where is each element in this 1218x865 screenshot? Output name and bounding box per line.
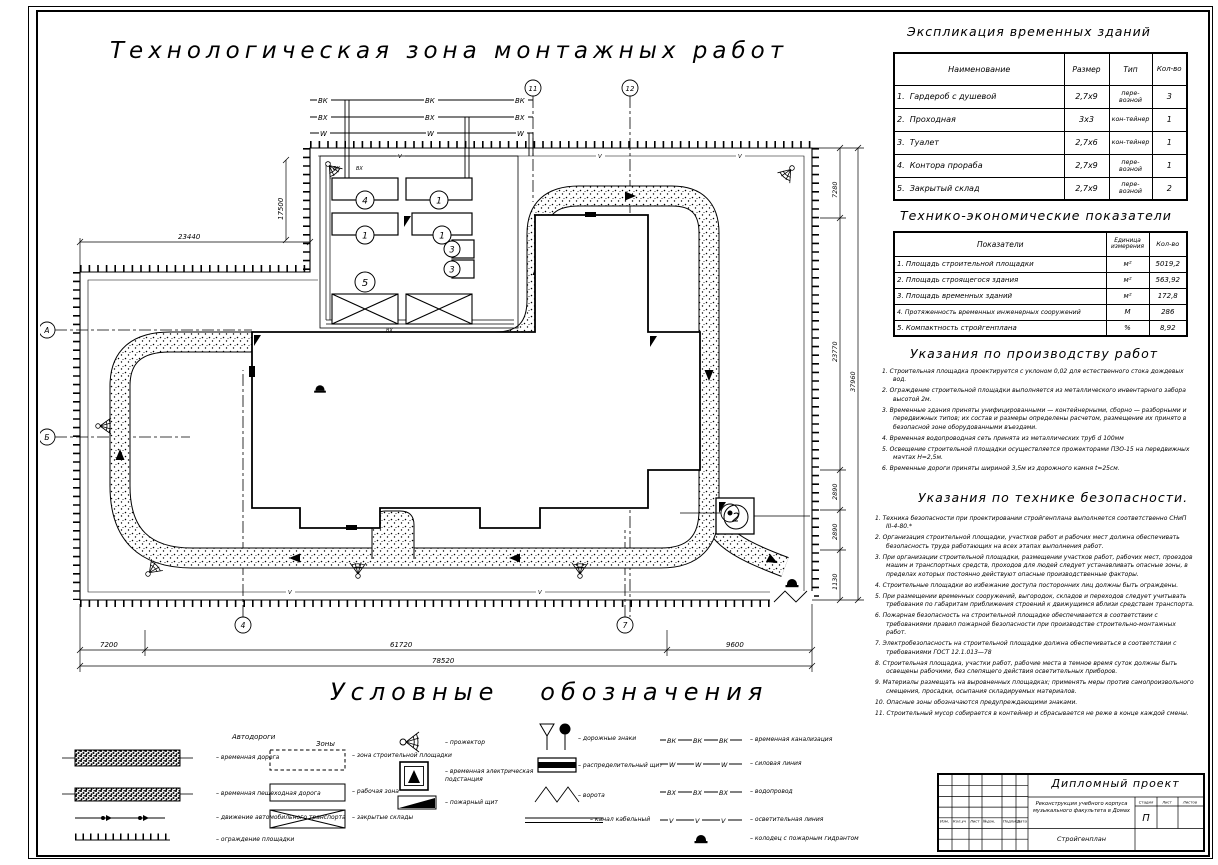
work-instructions-title: Указания по производству работ [910, 346, 1158, 361]
svg-text:ВХ: ВХ [356, 166, 363, 172]
svg-text:ВХ: ВХ [719, 789, 728, 797]
site-plan-drawing: ВК ВК ВК ВХ ВХ ВХ W W W [40, 70, 870, 690]
sheet-content-name: Стройгенплан [1031, 835, 1132, 843]
list-item: 1. Строительная площадка проектируется с… [882, 368, 1194, 385]
building-number: 4 [362, 197, 368, 207]
legend-symbols: ВК ВК ВК W W W ВХ ВХ ВХ V V V [60, 700, 820, 860]
fence-symbol [75, 837, 170, 841]
list-item: 8. Строительная площадка, участки работ,… [875, 660, 1195, 677]
utility-label-w: W [320, 130, 328, 138]
list-item: 3. Временные здания приняты унифицирован… [882, 407, 1194, 433]
svg-text:Б: Б [44, 433, 49, 442]
dim-bottom-3: 9600 [726, 641, 744, 649]
svg-text:ВК: ВК [719, 737, 728, 745]
dim-bottom-total: 78520 [432, 657, 455, 665]
svg-text:11: 11 [529, 85, 538, 93]
svg-text:А: А [43, 326, 49, 335]
svg-text:7280: 7280 [831, 181, 839, 198]
list-item: 11. Строительный мусор собирается в конт… [875, 710, 1195, 719]
traffic-symbol [75, 815, 165, 821]
safety-instructions-title: Указания по технике безопасности. [918, 490, 1188, 505]
svg-text:23770: 23770 [831, 341, 839, 362]
object-name: Реконструкция учебного корпуса музыкальн… [1031, 801, 1132, 814]
legend-label-road-signs: – дорожные знаки [578, 735, 678, 743]
legend-label-cable-channel: – канал кабельный [590, 816, 690, 824]
dim-right-total: 37960 [849, 371, 857, 392]
svg-text:Стадия: Стадия [1139, 800, 1154, 805]
legend-label-fire-shield: – пожарный щит [445, 799, 535, 807]
list-item: 3. При организации строительной площадки… [875, 554, 1195, 580]
fire-hydrant-icon [786, 579, 799, 587]
list-item: 6. Временные дороги приняты шириной 3,5м… [882, 465, 1194, 474]
legend-label-work-zone: – рабочая зона [352, 788, 457, 796]
svg-text:V: V [695, 817, 700, 825]
utility-label-vh: ВХ [318, 114, 328, 122]
temp-road-symbol [62, 750, 193, 766]
work-instructions-list: 1. Строительная площадка проектируется с… [882, 365, 1194, 476]
table-row: 1. Гардероб с душевой 2,7х9 пере-возной … [894, 85, 1187, 108]
svg-text:Лист: Лист [969, 819, 980, 824]
svg-text:W: W [517, 130, 525, 138]
table-row: 2. Проходная 3х3 кон-тейнер 1 [894, 108, 1187, 131]
legend-label-gates: – ворота [578, 792, 658, 800]
building-number: 1 [362, 232, 368, 242]
building-number: 1 [439, 232, 445, 242]
list-item: 5. При размещении временных сооружений, … [875, 593, 1195, 610]
legend-label-temp-ped-road: – временная пешеходная дорога [216, 790, 331, 798]
dim-bottom-1: 7200 [100, 641, 118, 649]
legend-label-site-zone: – зона строительной площадки [352, 752, 457, 760]
legend-label-distribution-board: – распределительный щит [578, 762, 688, 770]
svg-text:ВХ: ВХ [693, 789, 702, 797]
gate [770, 591, 814, 608]
stage-value: П [1142, 813, 1150, 824]
svg-text:Изм.: Изм. [940, 819, 949, 824]
legend-label-fence: – ограждение площадки [216, 836, 356, 844]
checkpoint: 2 [716, 498, 810, 534]
table-header-row: Наименование Размер Тип Кол-во [894, 53, 1187, 85]
safety-instructions-list: 1. Техника безопасности при проектирован… [875, 512, 1195, 721]
dim-bottom-2: 61720 [390, 641, 413, 649]
legend-label-power-line: – силовая линия [750, 760, 880, 768]
svg-text:Листов: Листов [1182, 800, 1198, 805]
explication-table: Наименование Размер Тип Кол-во 1. Гардер… [893, 52, 1188, 201]
svg-text:W: W [721, 761, 728, 769]
floodlight-legend-icon [400, 732, 419, 752]
list-item: 4. Временная водопроводная сеть принята … [882, 435, 1194, 444]
legend-label-closed-storage: – закрытые склады [352, 814, 457, 822]
svg-text:W: W [427, 130, 435, 138]
floodlight-icon [778, 161, 800, 183]
list-item: 2. Ограждение строительной площадки выпо… [882, 387, 1194, 404]
gates-icon [535, 787, 579, 802]
list-item: 1. Техника безопасности при проектирован… [875, 515, 1195, 532]
floodlight-icon [96, 418, 111, 434]
door-mark [585, 212, 596, 217]
road-signs-icon [540, 724, 571, 751]
legend-label-hydrant: – колодец с пожарным гидрантом [750, 835, 890, 843]
temporary-buildings-yard: ВК ВХ ВК ВХ 4 1 1 1 3 3 5 [320, 156, 518, 334]
building-number: 1 [436, 197, 442, 207]
water-line-symbol: ВХ ВХ ВХ [660, 787, 742, 797]
table-row: 5. Компактность стройгенплана % 8,92 [894, 320, 1187, 336]
list-item: 4. Строительные площадки во избежание до… [875, 582, 1195, 591]
dim-top-left: 23440 [178, 233, 201, 241]
drawing-sheet: Технологическая зона монтажных работ [0, 0, 1218, 865]
table-row: 4. Контора прораба 2,7х9 пере-возной 1 [894, 154, 1187, 177]
page-title: Технологическая зона монтажных работ [110, 38, 788, 64]
table-row: 2. Площадь строящегося здания м² 563,92 [894, 272, 1187, 288]
utility-lines-top: ВК ВК ВК ВХ ВХ ВХ W W W [310, 95, 533, 178]
svg-text:ВХ: ВХ [667, 789, 676, 797]
tep-title: Технико-экономические показатели [900, 208, 1172, 223]
fire-shield-icon [398, 796, 436, 809]
table-row: 5. Закрытый склад 2,7х9 пере-возной 2 [894, 177, 1187, 200]
svg-text:12: 12 [626, 85, 635, 93]
list-item: 5. Освещение строительной площадки осуще… [882, 446, 1194, 463]
svg-text:2890: 2890 [831, 483, 839, 500]
svg-text:ВХ: ВХ [515, 114, 525, 122]
svg-text:ВК: ВК [425, 97, 436, 105]
table-row: 4. Протяженность временных инженерных со… [894, 304, 1187, 320]
svg-text:4: 4 [241, 621, 246, 630]
svg-text:2890: 2890 [831, 523, 839, 540]
door-mark [249, 366, 255, 377]
floodlight-icon [320, 157, 342, 179]
svg-text:Кол.уч: Кол.уч [953, 819, 967, 824]
dim-yard-left: 17500 [277, 197, 285, 220]
flag-mark [404, 216, 411, 227]
svg-text:W: W [695, 761, 702, 769]
building-number: 3 [449, 246, 454, 256]
svg-text:Лист: Лист [1161, 800, 1172, 805]
utility-label-vk: ВК [318, 97, 329, 105]
table-row: 3. Площадь временных зданий м² 172,8 [894, 288, 1187, 304]
legend-label-floodlight: – прожектор [445, 739, 525, 747]
building-number: 5 [362, 278, 368, 289]
svg-text:№док.: №док. [982, 819, 995, 824]
hydrant-legend-icon [695, 835, 708, 843]
svg-text:Дата: Дата [1016, 819, 1028, 824]
svg-text:ВХ: ВХ [425, 114, 435, 122]
table-row: 3. Туалет 2,7х6 кон-тейнер 1 [894, 131, 1187, 154]
temp-ped-road-symbol [62, 788, 193, 801]
list-item: 10. Опасные зоны обозначаются предупрежд… [875, 699, 1195, 708]
list-item: 6. Пожарная безопасность на строительной… [875, 612, 1195, 638]
legend-label-water-line: – водопровод [750, 788, 880, 796]
svg-text:1130: 1130 [831, 573, 839, 590]
legend-label-substation: – временная электрическая подстанция [445, 768, 565, 783]
list-item: 7. Электробезопасность на строительной п… [875, 640, 1195, 657]
legend-label-temp-road: – временная дорога [216, 754, 316, 762]
svg-text:ВХ: ВХ [386, 328, 393, 334]
legend-label-light-line: – осветительная линия [750, 816, 880, 824]
list-item: 9. Материалы размещать на выровненных пл… [875, 679, 1195, 696]
tep-table: Показатели Единица измерения Кол-во 1. П… [893, 231, 1188, 337]
title-block: Изм. Кол.уч Лист №док. Подпись Дата Стад… [937, 773, 1205, 852]
legend-label-temp-sewer: – временная канализация [750, 736, 880, 744]
table-row: 1. Площадь строительной площадки м² 5019… [894, 256, 1187, 272]
list-item: 2. Организация строительной площадки, уч… [875, 534, 1195, 551]
closed-storage [332, 294, 472, 324]
building-number: 3 [449, 266, 454, 276]
svg-text:ВК: ВК [515, 97, 526, 105]
table-header-row: Показатели Единица измерения Кол-во [894, 232, 1187, 256]
svg-text:V: V [721, 817, 726, 825]
svg-text:ВК: ВК [693, 737, 702, 745]
substation-icon [400, 762, 428, 790]
project-name: Дипломный проект [1028, 777, 1203, 790]
svg-text:7: 7 [623, 621, 628, 630]
explication-title: Экспликация временных зданий [907, 24, 1151, 39]
door-mark [346, 525, 357, 530]
